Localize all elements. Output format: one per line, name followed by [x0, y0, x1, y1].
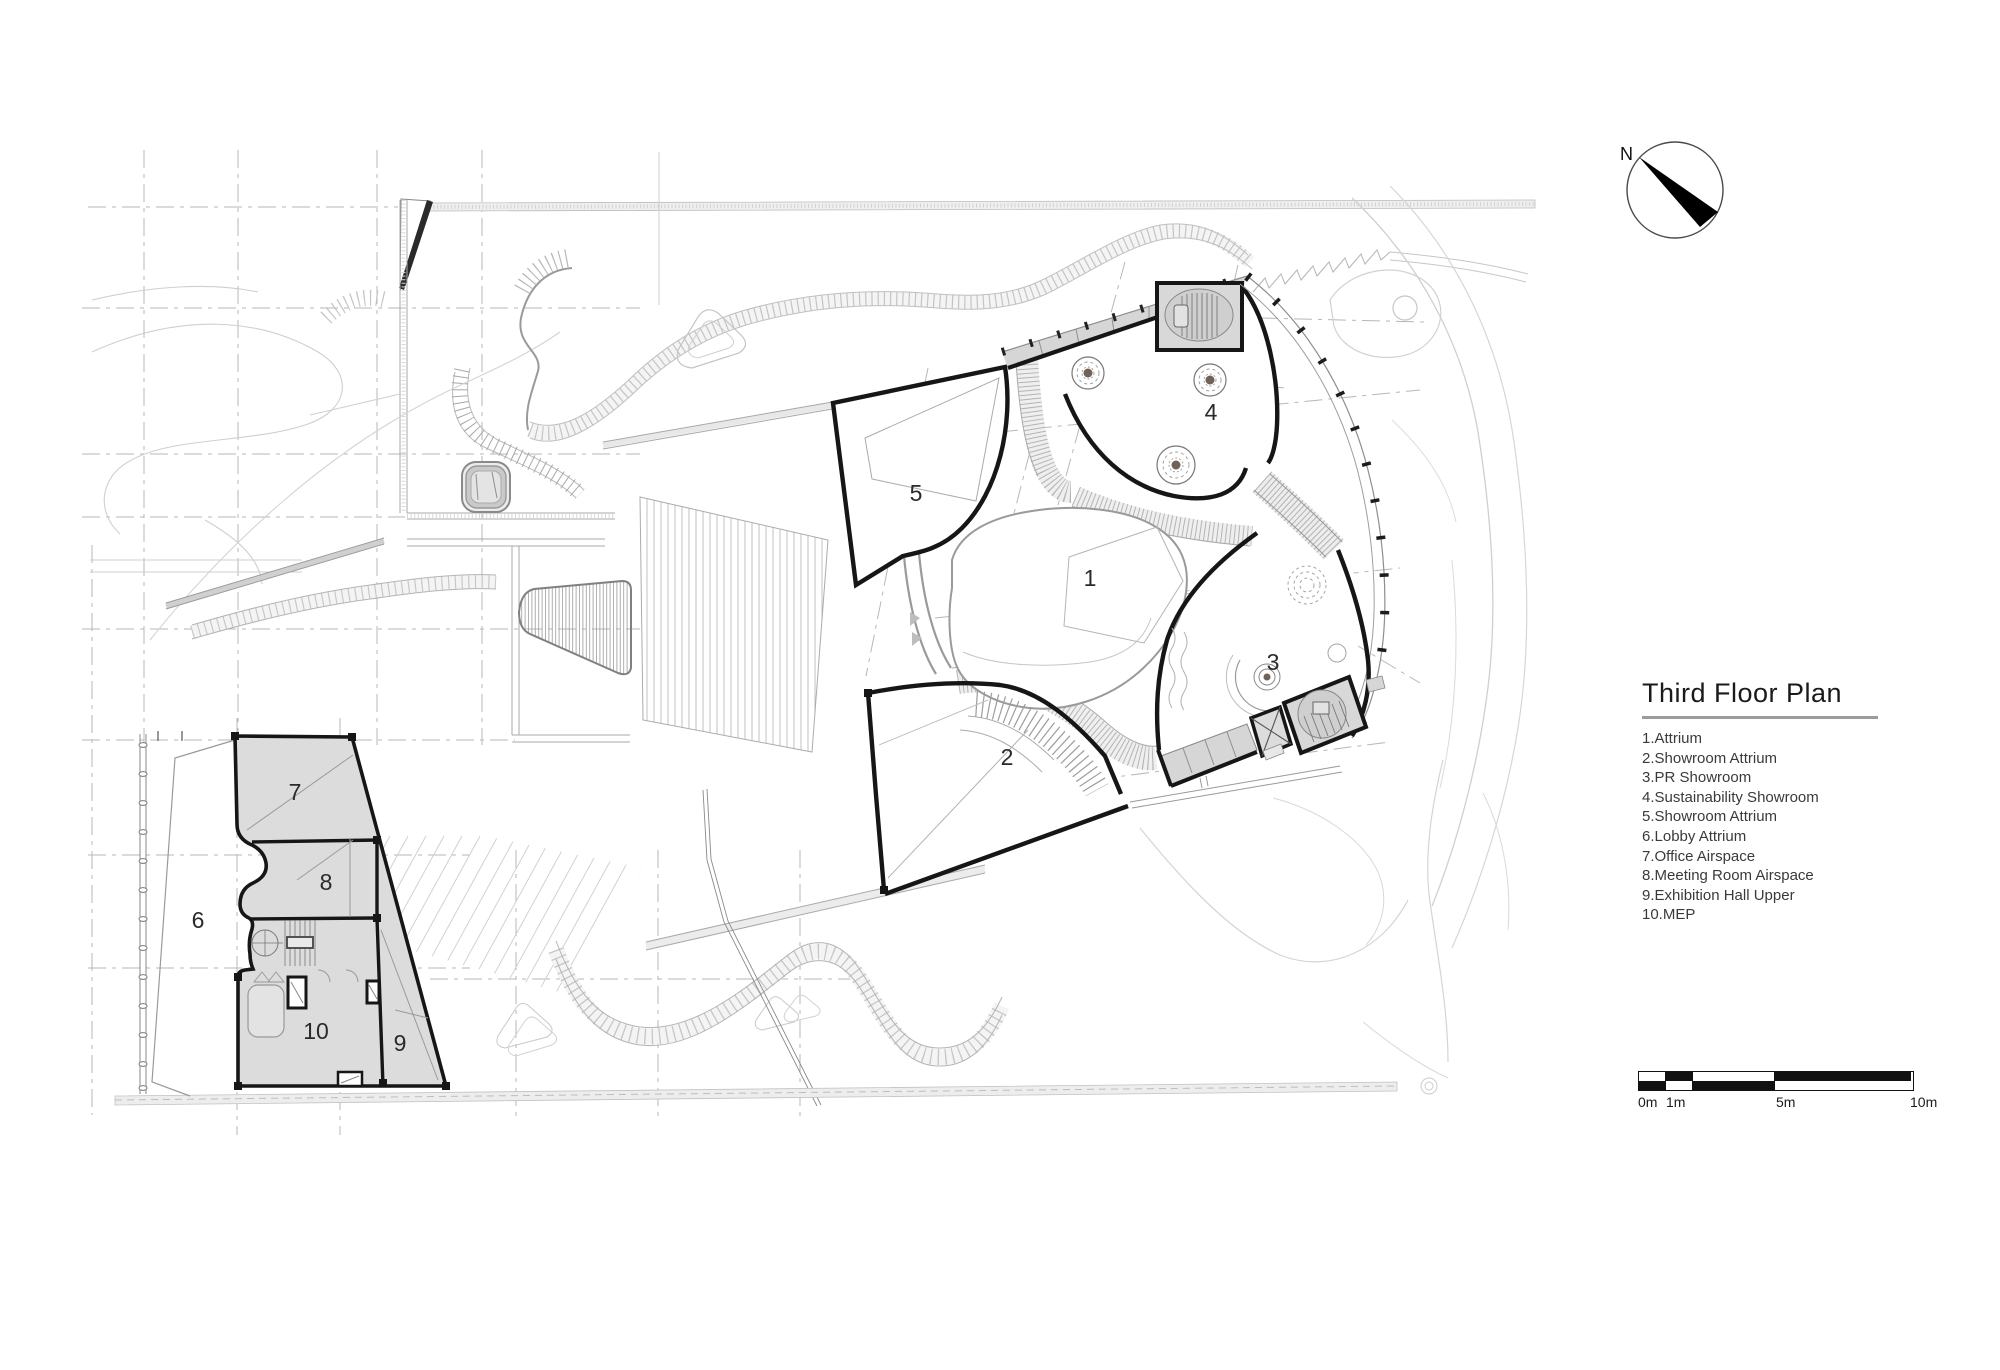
scale-bar-row-top [1639, 1072, 1913, 1081]
legend-item-meeting-airspace: 8.Meeting Room Airspace [1642, 866, 1942, 886]
compass-needle-icon [1639, 157, 1718, 227]
room-1-atrium [950, 508, 1187, 709]
scale-seg [1693, 1072, 1775, 1081]
legend-item-lobby-attrium: 6.Lobby Attrium [1642, 827, 1942, 847]
compass-graphic: N [1610, 110, 1790, 290]
scale-bar: 0m 1m 5m 10m [1638, 1071, 1950, 1112]
title-block: Third Floor Plan 1.Attrium 2.Showroom At… [1642, 678, 1942, 925]
ramp-room5 [904, 553, 951, 674]
main-building [833, 276, 1385, 894]
scale-seg [1639, 1072, 1666, 1081]
legend-item-mep: 10.MEP [1642, 905, 1942, 925]
landscape-path-south [497, 941, 1002, 1066]
title-underline [1642, 716, 1878, 719]
room-label-6: 6 [192, 907, 205, 933]
scale-label-10m: 10m [1910, 1094, 1937, 1110]
legend-item-sustainability: 4.Sustainability Showroom [1642, 788, 1942, 808]
scale-seg [1666, 1081, 1693, 1090]
scale-seg [1775, 1081, 1911, 1090]
scale-label-1m: 1m [1666, 1094, 1685, 1110]
boundary-flag [399, 199, 433, 291]
room-label-10: 10 [303, 1018, 329, 1044]
scale-seg [1775, 1072, 1911, 1081]
scale-seg [1693, 1081, 1775, 1090]
south-walkway [1130, 766, 1342, 808]
room-label-3: 3 [1267, 649, 1280, 675]
scale-label-0m: 0m [1638, 1094, 1657, 1110]
room-label-2: 2 [1001, 744, 1014, 770]
room-label-1: 1 [1084, 565, 1097, 591]
legend: 1.Attrium 2.Showroom Attrium 3.PR Showro… [1642, 729, 1942, 925]
scale-bar-graphic [1638, 1071, 1914, 1091]
scale-seg [1639, 1081, 1666, 1090]
legend-item-exhibition-upper: 9.Exhibition Hall Upper [1642, 886, 1942, 906]
skylight [462, 462, 510, 512]
tank [248, 985, 284, 1037]
room-label-8: 8 [320, 869, 333, 895]
scale-bar-labels: 0m 1m 5m 10m [1638, 1094, 1950, 1112]
legend-item-showroom-attrium-2: 2.Showroom Attrium [1642, 749, 1942, 769]
compass-north-label: N [1620, 144, 1633, 164]
room-label-7: 7 [289, 779, 302, 805]
legend-item-office-airspace: 7.Office Airspace [1642, 847, 1942, 867]
north-compass: N [1610, 110, 1790, 290]
site-boundary-north [430, 200, 1535, 211]
room-6-west-wall [139, 731, 182, 1094]
legend-item-pr-showroom: 3.PR Showroom [1642, 768, 1942, 788]
legend-item-attrium: 1.Attrium [1642, 729, 1942, 749]
stair-core-north [1157, 283, 1242, 350]
scale-seg [1666, 1072, 1693, 1081]
room-label-5: 5 [910, 480, 923, 506]
room-label-9: 9 [394, 1030, 407, 1056]
legend-item-showroom-attrium-5: 5.Showroom Attrium [1642, 807, 1942, 827]
page-title: Third Floor Plan [1642, 678, 1942, 709]
floor-plan-sheet: 1 2 3 4 5 6 7 8 9 10 N Third Floor Plan … [0, 0, 2000, 1370]
scale-label-5m: 5m [1776, 1094, 1795, 1110]
room-label-4: 4 [1205, 399, 1218, 425]
scale-bar-row-bottom [1639, 1081, 1913, 1090]
